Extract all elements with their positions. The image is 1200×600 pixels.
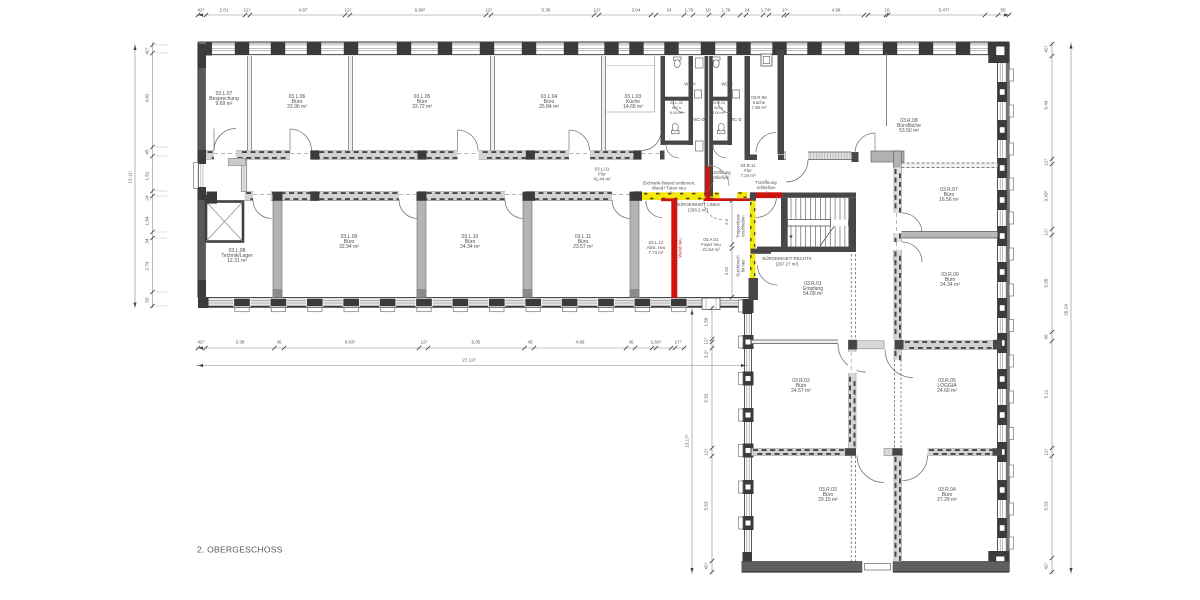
svg-text:42⁵: 42⁵: [197, 8, 204, 13]
svg-text:BÜROEINHEIT RECHTS: BÜROEINHEIT RECHTS: [762, 256, 811, 261]
svg-text:schließen: schließen: [711, 175, 730, 180]
svg-text:2.52: 2.52: [724, 266, 729, 275]
svg-text:für neu: für neu: [741, 260, 746, 273]
svg-text:45: 45: [1044, 334, 1049, 340]
svg-text:12.31 m²: 12.31 m²: [227, 258, 247, 264]
svg-text:4.82: 4.82: [145, 93, 150, 102]
svg-text:6.83⁵: 6.83⁵: [345, 340, 356, 345]
svg-text:6.00 m²: 6.00 m²: [670, 111, 684, 115]
svg-text:BÜROEINHEIT LINKS: BÜROEINHEIT LINKS: [676, 202, 720, 207]
svg-text:53.50 m²: 53.50 m²: [899, 128, 919, 134]
svg-text:5.36: 5.36: [542, 8, 551, 13]
svg-text:12⁵: 12⁵: [1044, 448, 1049, 455]
svg-text:2.3: 2.3: [724, 218, 729, 224]
svg-text:2.01: 2.01: [220, 8, 229, 13]
svg-text:1.74⁵: 1.74⁵: [761, 8, 772, 13]
svg-text:32.94 m²: 32.94 m²: [339, 244, 359, 250]
svg-text:1.60⁵: 1.60⁵: [651, 340, 662, 345]
svg-text:27.12⁵: 27.12⁵: [462, 358, 475, 363]
svg-text:14.65 m²: 14.65 m²: [623, 104, 643, 110]
svg-text:45: 45: [628, 340, 634, 345]
svg-text:12⁵: 12⁵: [344, 8, 351, 13]
svg-text:WC-D: WC-D: [730, 117, 741, 122]
svg-text:12⁵: 12⁵: [704, 448, 709, 455]
svg-text:Wand neu: Wand neu: [678, 238, 683, 258]
svg-text:12⁵: 12⁵: [593, 8, 600, 13]
svg-text:1.81: 1.81: [145, 171, 150, 180]
svg-text:4.98: 4.98: [832, 8, 841, 13]
svg-text:(258.2 m²): (258.2 m²): [688, 208, 709, 213]
svg-text:WC-H: WC-H: [684, 82, 695, 87]
svg-text:5.44: 5.44: [1044, 100, 1049, 109]
svg-text:23.96 m²: 23.96 m²: [287, 104, 307, 110]
svg-text:5.05: 5.05: [472, 340, 481, 345]
svg-text:12⁵: 12⁵: [420, 340, 427, 345]
svg-text:3.38: 3.38: [236, 340, 245, 345]
svg-text:12⁵: 12⁵: [1044, 228, 1049, 235]
svg-text:55: 55: [1000, 8, 1006, 13]
svg-text:1¹⁵: 1¹⁵: [782, 8, 788, 13]
svg-text:24.60 m²: 24.60 m²: [937, 388, 957, 394]
svg-text:1.76: 1.76: [685, 8, 694, 13]
svg-text:24: 24: [744, 8, 750, 13]
svg-text:42⁵: 42⁵: [704, 562, 709, 569]
svg-text:3.04: 3.04: [632, 8, 641, 13]
svg-text:WC's: WC's: [672, 106, 681, 110]
svg-text:45: 45: [276, 340, 282, 345]
svg-text:3.2⁵: 3.2⁵: [704, 350, 709, 358]
svg-text:WC's: WC's: [714, 106, 723, 110]
svg-text:erschließen: erschließen: [741, 215, 746, 237]
svg-text:5.47⁵: 5.47⁵: [939, 8, 950, 13]
svg-text:42⁵: 42⁵: [1044, 562, 1049, 569]
svg-text:10: 10: [705, 8, 711, 13]
svg-text:29.15 m²: 29.15 m²: [818, 497, 838, 503]
svg-text:WC-H: WC-H: [721, 82, 732, 87]
svg-text:17⁵: 17⁵: [674, 340, 681, 345]
svg-text:4.89: 4.89: [576, 340, 585, 345]
svg-text:25.84 m²: 25.84 m²: [539, 104, 559, 110]
svg-text:45: 45: [145, 149, 150, 155]
svg-text:12⁵: 12⁵: [485, 8, 492, 13]
svg-text:03.L.02: 03.L.02: [670, 101, 683, 105]
svg-text:33.72 m²: 33.72 m²: [412, 104, 432, 110]
svg-text:24: 24: [145, 195, 150, 201]
svg-text:3.43⁵: 3.43⁵: [1044, 190, 1049, 201]
svg-text:12⁵: 12⁵: [243, 8, 250, 13]
svg-text:13.11⁵: 13.11⁵: [128, 170, 133, 183]
svg-text:26.24: 26.24: [1064, 304, 1069, 316]
svg-text:7.74 m²: 7.74 m²: [649, 250, 664, 255]
svg-text:9.69 m²: 9.69 m²: [216, 101, 233, 107]
svg-text:10: 10: [884, 8, 890, 13]
svg-text:6.00 m²: 6.00 m²: [712, 111, 726, 115]
svg-text:5.53: 5.53: [704, 501, 709, 510]
svg-text:42⁵: 42⁵: [1044, 45, 1049, 52]
svg-text:(267.27 m²): (267.27 m²): [776, 262, 799, 267]
svg-text:1.84: 1.84: [145, 216, 150, 225]
svg-text:2. OBERGESCHOSS: 2. OBERGESCHOSS: [197, 545, 283, 555]
svg-text:34: 34: [145, 238, 150, 244]
svg-text:24: 24: [666, 8, 672, 13]
svg-text:4.97: 4.97: [299, 8, 308, 13]
svg-text:24.34 m²: 24.34 m²: [940, 282, 960, 288]
svg-text:16.56 m²: 16.56 m²: [939, 197, 959, 203]
svg-text:21.54 m²: 21.54 m²: [702, 247, 720, 252]
svg-text:23.57 m²: 23.57 m²: [573, 244, 593, 250]
svg-text:7.80 m²: 7.80 m²: [752, 105, 767, 110]
svg-text:42⁵: 42⁵: [197, 340, 204, 345]
svg-text:5.05: 5.05: [1044, 278, 1049, 287]
svg-text:5.53: 5.53: [1044, 501, 1049, 510]
svg-text:13.17⁵: 13.17⁵: [685, 434, 690, 447]
svg-text:45: 45: [527, 340, 533, 345]
svg-text:1.59: 1.59: [704, 317, 709, 326]
svg-text:55: 55: [145, 297, 150, 303]
svg-text:12⁵: 12⁵: [704, 337, 709, 344]
svg-text:12⁵: 12⁵: [1044, 158, 1049, 165]
svg-text:schließen: schließen: [757, 185, 776, 190]
svg-text:5.53: 5.53: [704, 393, 709, 402]
svg-text:41.44 m²: 41.44 m²: [593, 177, 611, 182]
svg-text:54.09 m²: 54.09 m²: [803, 291, 823, 297]
svg-text:24.34 m²: 24.34 m²: [460, 244, 480, 250]
svg-text:5.11: 5.11: [1044, 389, 1049, 398]
svg-text:1.76: 1.76: [722, 8, 731, 13]
svg-text:27.29 m²: 27.29 m²: [937, 497, 957, 503]
svg-text:2.74: 2.74: [145, 261, 150, 270]
svg-text:03.R.10: 03.R.10: [712, 101, 725, 105]
svg-text:WC-D: WC-D: [693, 117, 704, 122]
svg-text:42⁵: 42⁵: [145, 47, 150, 54]
svg-text:24.57 m²: 24.57 m²: [791, 388, 811, 394]
svg-text:Wand+Türen neu: Wand+Türen neu: [652, 186, 686, 191]
svg-text:7.34 m²: 7.34 m²: [741, 173, 756, 178]
svg-text:6.99⁵: 6.99⁵: [415, 8, 426, 13]
